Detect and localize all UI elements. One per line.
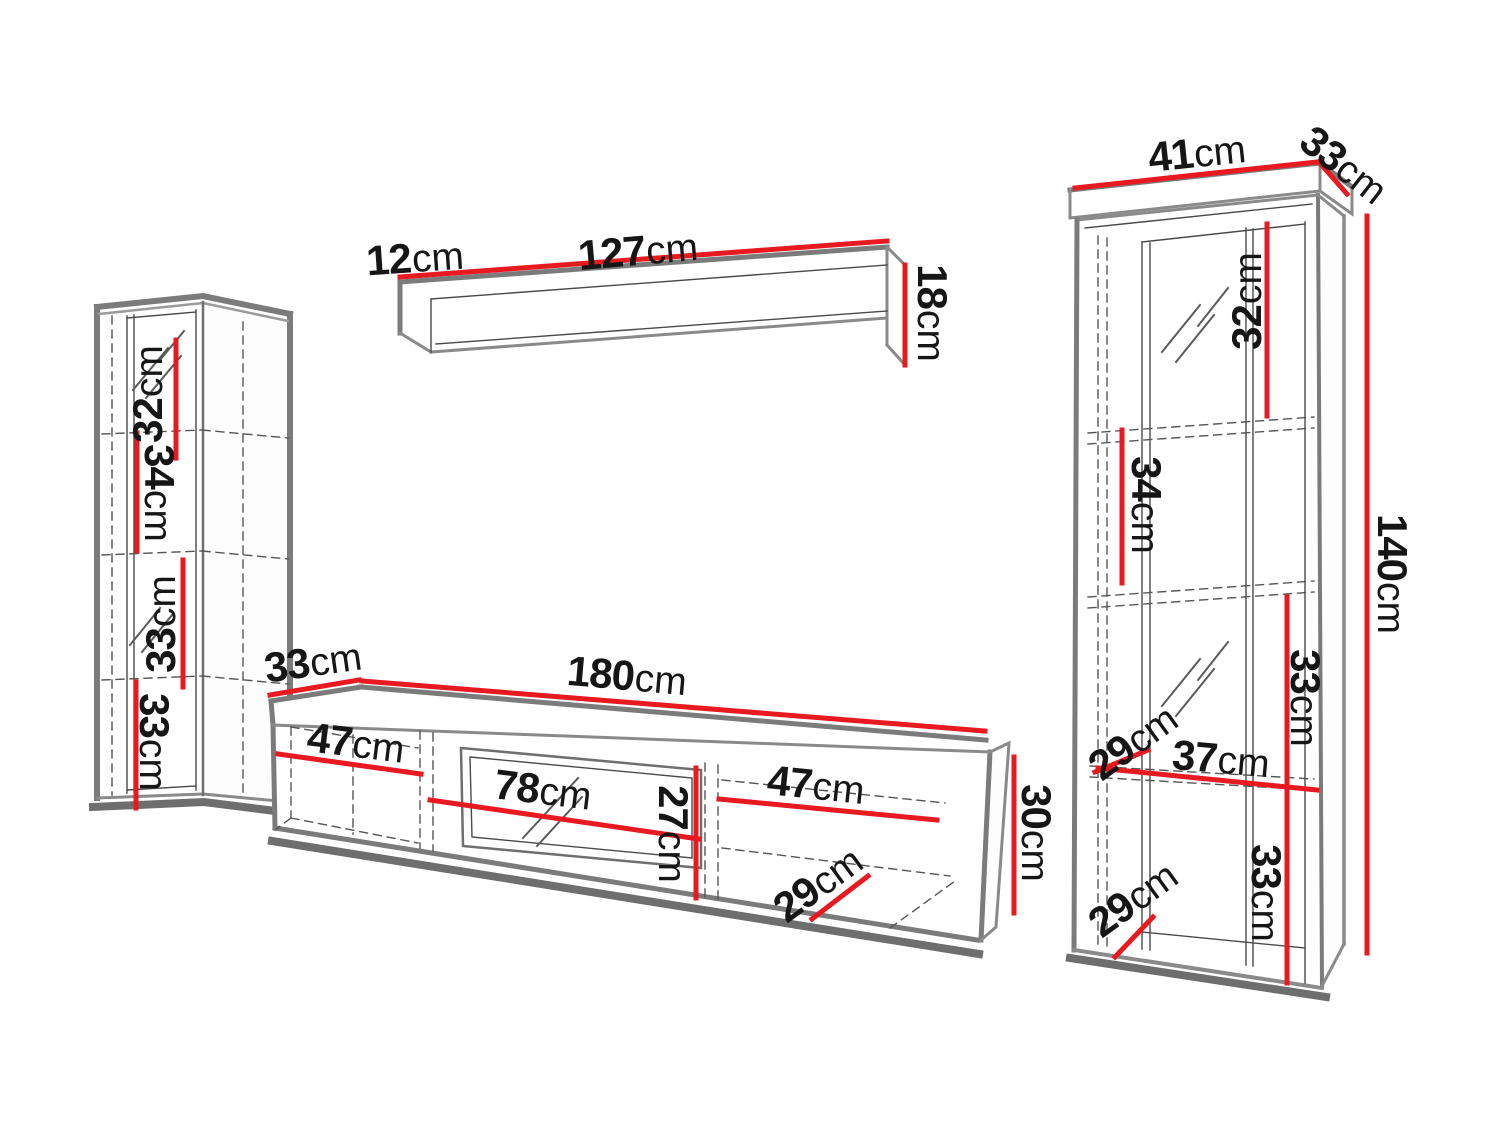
- dim-label-right-cab-section3: 33cm: [1284, 649, 1326, 747]
- dim-label-right-cab-total-height: 140cm: [1371, 514, 1413, 634]
- dim-label-right-cab-section2: 34cm: [1125, 456, 1167, 554]
- dim-label-right-cab-inner-width: 37cm: [1170, 734, 1271, 784]
- dim-label-shelf-depth: 12cm: [365, 234, 465, 283]
- dim-label-left-cab-section4: 33cm: [133, 693, 175, 791]
- diagram-linework: [0, 0, 1500, 1124]
- right-cabinet-drawing: [1070, 163, 1352, 997]
- dim-label-tv-right-compartment: 47cm: [765, 759, 867, 811]
- dim-label-shelf-length: 127cm: [576, 225, 699, 277]
- dim-label-shelf-height: 18cm: [911, 264, 953, 362]
- left-cabinet-drawing: [93, 296, 290, 812]
- dim-label-right-cab-top-width: 41cm: [1146, 127, 1248, 179]
- dim-label-tv-height: 30cm: [1015, 784, 1057, 882]
- dim-label-left-cab-section1: 32cm: [127, 345, 169, 443]
- dim-label-right-cab-section4: 33cm: [1245, 844, 1287, 942]
- dim-label-tv-middle-height: 27cm: [652, 785, 694, 883]
- furniture-dimension-diagram: 12cm 127cm 18cm 32cm 34cm 33cm 33cm 33cm…: [0, 0, 1500, 1124]
- dim-label-right-cab-section1: 32cm: [1226, 252, 1268, 350]
- dim-label-left-cab-section3: 33cm: [140, 575, 182, 673]
- dim-label-left-cab-section2: 34cm: [138, 444, 180, 542]
